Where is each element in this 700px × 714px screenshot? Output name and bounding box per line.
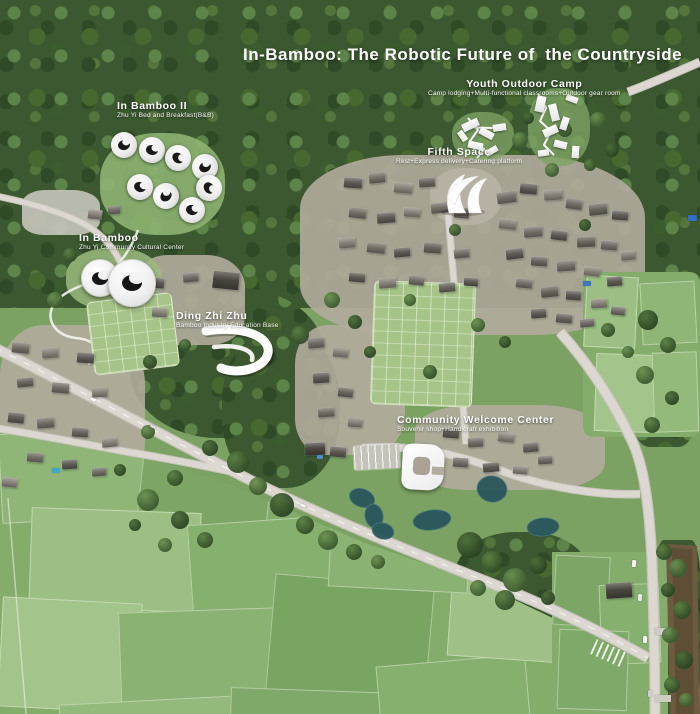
house-roof <box>369 172 386 184</box>
house-roof <box>591 298 608 308</box>
house-roof <box>88 209 103 219</box>
tree-canopy <box>499 336 511 348</box>
tree-canopy <box>522 112 534 124</box>
site-subtitle: Zhu Yi Community Cultural Center <box>79 244 184 251</box>
house-roof <box>524 226 543 238</box>
tree-canopy <box>470 580 486 596</box>
car <box>632 560 636 567</box>
house-roof <box>483 462 500 472</box>
tree-canopy <box>197 532 213 548</box>
house-roof <box>513 465 528 474</box>
tree-canopy <box>346 544 362 560</box>
house-roof <box>2 477 18 488</box>
house-roof <box>566 290 582 300</box>
house-roof <box>612 210 629 220</box>
tree-canopy <box>679 693 693 707</box>
house-roof <box>37 417 55 428</box>
welcome-center-courtyard <box>413 456 431 475</box>
tree-canopy <box>202 440 218 456</box>
site-title: Community Welcome Center <box>397 414 554 426</box>
house-roof <box>379 277 397 288</box>
house-roof <box>531 256 548 266</box>
tree-canopy <box>541 591 555 605</box>
house-roof <box>611 306 626 315</box>
house-roof <box>42 347 59 358</box>
house-roof <box>538 456 553 465</box>
tree-canopy <box>481 551 503 573</box>
tree-canopy <box>605 143 619 157</box>
tree-canopy <box>661 583 675 597</box>
house-roof <box>505 248 523 260</box>
site-subtitle: Bamboo Industry Education Base <box>176 322 278 329</box>
tree-canopy <box>579 219 591 231</box>
tree-canopy <box>669 559 687 577</box>
tree-canopy <box>673 601 691 619</box>
house-roof <box>17 377 34 388</box>
tree-canopy <box>324 292 340 308</box>
house-roof <box>621 250 636 260</box>
house-roof <box>556 313 573 323</box>
blue-roof <box>583 281 591 286</box>
blue-roof <box>52 468 60 473</box>
house-roof <box>77 352 95 363</box>
house-roof <box>577 237 595 248</box>
car <box>648 690 652 697</box>
house-roof <box>588 203 607 216</box>
tree-canopy <box>664 677 680 693</box>
tree-canopy <box>404 294 416 306</box>
tree-canopy <box>495 590 515 610</box>
house-roof <box>108 205 121 214</box>
tree-canopy <box>638 310 658 330</box>
house-roof <box>349 207 367 219</box>
tree-canopy <box>584 159 596 171</box>
house-roof <box>516 278 533 288</box>
house-roof <box>339 237 356 248</box>
house-roof <box>431 202 449 214</box>
tree-canopy <box>660 337 676 353</box>
camp-cabin <box>572 146 580 158</box>
house-roof <box>52 382 70 393</box>
house-roof <box>601 240 618 250</box>
tree-canopy <box>665 391 679 405</box>
car <box>300 503 307 508</box>
house-roof <box>92 387 108 397</box>
house-roof <box>404 207 421 217</box>
house-roof <box>12 342 30 353</box>
site-title: Youth Outdoor Camp <box>428 78 621 90</box>
house-roof <box>439 282 456 292</box>
blue-roof <box>317 455 323 459</box>
poster-title: In-Bamboo: The Robotic Future of the Cou… <box>243 45 682 65</box>
annotation-in-bamboo: In Bamboo Zhu Yi Community Cultural Cent… <box>79 232 184 251</box>
house-roof <box>27 452 44 462</box>
house-roof <box>409 275 425 286</box>
tree-canopy <box>171 511 189 529</box>
annotation-fifth-space: Fifth Space Rest+Express delivery+Cateri… <box>396 146 522 165</box>
house-roof <box>338 387 354 398</box>
tree-canopy <box>423 365 437 379</box>
house-roof <box>464 278 479 287</box>
site-title: In Bamboo II <box>117 100 214 112</box>
annotation-community-welcome-center: Community Welcome Center Souvenir shop+H… <box>397 414 554 433</box>
house-roof <box>453 457 469 467</box>
tree-canopy <box>47 292 63 308</box>
house-roof <box>394 247 411 257</box>
house-roof <box>607 276 623 286</box>
in-bamboo-building-large-disc <box>108 259 156 307</box>
house-roof <box>367 242 386 254</box>
house-roof <box>313 372 330 383</box>
site-subtitle: Souvenir shop+Handicraft exhibition <box>397 426 554 433</box>
tree-canopy <box>622 346 634 358</box>
house-roof <box>333 347 349 357</box>
house-roof <box>424 242 442 253</box>
house-roof <box>551 230 568 241</box>
tree-canopy <box>471 318 485 332</box>
annotation-ding-zhi-zhu: Ding Zhi Zhu Bamboo Industry Education B… <box>176 310 278 329</box>
house-roof <box>62 459 78 469</box>
house-roof <box>152 307 168 317</box>
house-roof <box>377 212 396 224</box>
house-roof <box>557 260 576 271</box>
annotation-youth-outdoor-camp: Youth Outdoor Camp Camp lodging+Multi-fu… <box>428 78 621 97</box>
tree-canopy <box>644 417 660 433</box>
house-roof <box>212 271 240 291</box>
house-roof <box>72 427 89 437</box>
tree-canopy <box>636 366 654 384</box>
tree-canopy <box>129 519 141 531</box>
house-roof <box>454 208 470 218</box>
house-roof <box>419 177 436 187</box>
tree-canopy <box>457 532 483 558</box>
site-subtitle: Zhu Yi Bed and Breakfast(B&B) <box>117 112 214 119</box>
house-roof <box>544 189 563 200</box>
tree-canopy <box>296 516 314 534</box>
house-roof <box>92 467 107 476</box>
house-roof <box>580 318 595 327</box>
house-roof <box>584 266 601 277</box>
house-roof <box>102 437 118 448</box>
house-roof <box>305 442 326 455</box>
tree-canopy <box>675 651 693 669</box>
tree-canopy <box>167 470 183 486</box>
house-roof <box>499 218 517 230</box>
house-roof <box>523 442 539 453</box>
site-title: Fifth Space <box>396 146 522 158</box>
house-roof <box>349 272 366 282</box>
site-title: Ding Zhi Zhu <box>176 310 278 322</box>
house-roof <box>468 437 484 447</box>
annotation-in-bamboo-ii: In Bamboo II Zhu Yi Bed and Breakfast(B&… <box>117 100 214 119</box>
tree-canopy <box>545 163 559 177</box>
tree-canopy <box>179 339 191 351</box>
tree-canopy <box>662 627 678 643</box>
house-roof <box>531 308 547 318</box>
car <box>90 397 97 402</box>
tree-canopy <box>143 355 157 369</box>
tree-canopy <box>590 112 606 128</box>
tree-canopy <box>137 489 159 511</box>
tree-canopy <box>449 224 461 236</box>
house-roof <box>330 446 347 457</box>
house-roof <box>520 183 538 194</box>
house-roof <box>565 198 582 210</box>
house-roof <box>394 182 413 194</box>
house-roof <box>183 272 199 283</box>
tree-canopy <box>364 346 376 358</box>
house-roof <box>318 407 335 417</box>
house-roof <box>348 418 363 428</box>
decor-layer <box>0 0 700 714</box>
tree-canopy <box>114 464 126 476</box>
site-title: In Bamboo <box>79 232 184 244</box>
community-welcome-center-building <box>401 443 445 491</box>
tree-canopy <box>249 477 267 495</box>
car <box>643 636 647 643</box>
tree-canopy <box>227 451 249 473</box>
house-roof <box>308 337 325 349</box>
tree-canopy <box>503 568 527 592</box>
site-plan-map: In-Bamboo: The Robotic Future of the Cou… <box>0 0 700 714</box>
tree-canopy <box>371 555 385 569</box>
tree-canopy <box>63 248 77 262</box>
tree-canopy <box>318 530 338 550</box>
house-roof <box>8 412 25 424</box>
house-roof <box>606 582 633 599</box>
tree-canopy <box>656 544 672 560</box>
house-roof <box>498 432 515 443</box>
tree-canopy <box>601 323 615 337</box>
car <box>638 594 642 601</box>
site-subtitle: Rest+Express delivery+Catering platform <box>396 158 522 165</box>
blue-roof <box>688 215 697 221</box>
house-roof <box>496 191 516 205</box>
tree-canopy <box>348 315 362 329</box>
house-roof <box>344 177 363 188</box>
house-roof <box>454 248 470 259</box>
tree-canopy <box>529 556 547 574</box>
tree-canopy <box>270 493 294 517</box>
house-roof <box>541 286 559 298</box>
site-subtitle: Camp lodging+Multi-functional classrooms… <box>428 90 621 97</box>
tree-canopy <box>158 538 172 552</box>
tree-canopy <box>291 326 309 344</box>
welcome-center-entrance <box>432 466 444 475</box>
